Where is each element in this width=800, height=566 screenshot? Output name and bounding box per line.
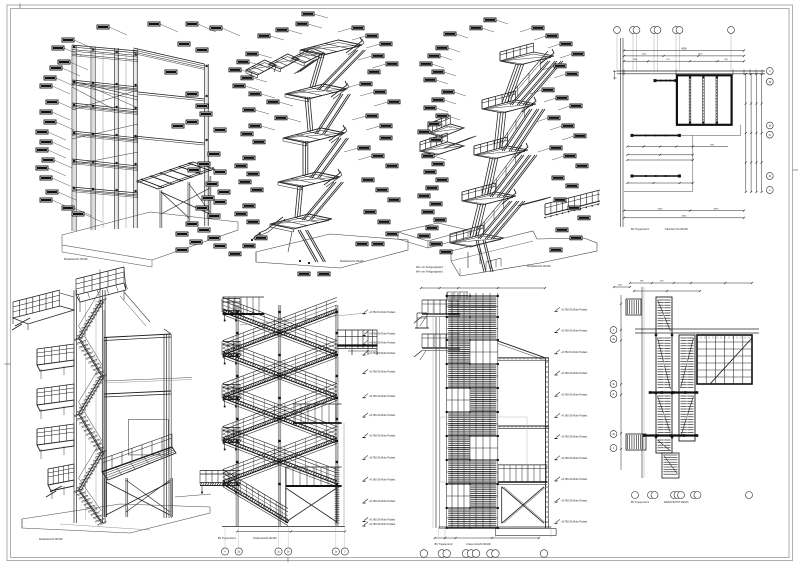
- svg-text:+9,760 Ok Rohr Podest: +9,760 Ok Rohr Podest: [561, 499, 588, 502]
- svg-text:+9,760 Ok Rohr Podest: +9,760 Ok Rohr Podest: [369, 435, 396, 438]
- svg-text:596: 596: [710, 144, 714, 146]
- svg-text:+9,760 Ok Rohr Podest: +9,760 Ok Rohr Podest: [561, 393, 588, 396]
- svg-text:+9,760 Ok Rohr Podest: +9,760 Ok Rohr Podest: [369, 414, 396, 417]
- svg-text:+9,760 Ok Rohr Podest: +9,760 Ok Rohr Podest: [369, 519, 396, 522]
- svg-text:+9,760 Ok Rohr Podest: +9,760 Ok Rohr Podest: [369, 395, 396, 398]
- svg-text:Modellansicht 09/100: Modellansicht 09/100: [39, 538, 63, 541]
- svg-text:Modellansicht 09/100: Modellansicht 09/100: [340, 260, 364, 263]
- svg-text:+9,760 Ok Rohr Podest: +9,760 Ok Rohr Podest: [561, 521, 588, 524]
- svg-text:5080: 5080: [658, 209, 664, 211]
- svg-text:+9,760 Ok Rohr Podest: +9,760 Ok Rohr Podest: [369, 478, 396, 481]
- svg-text:1360: 1360: [633, 59, 638, 61]
- svg-text:BV Treppenturm: BV Treppenturm: [631, 501, 649, 504]
- svg-text:2140: 2140: [642, 54, 647, 56]
- svg-text:1560: 1560: [618, 285, 622, 287]
- svg-text:BV Treppenturm: BV Treppenturm: [435, 543, 453, 546]
- svg-text:Modellansicht 09/100: Modellansicht 09/100: [527, 265, 551, 268]
- svg-text:+9,760 Ok Rohr Podest: +9,760 Ok Rohr Podest: [561, 372, 588, 375]
- svg-text:Modellansicht 09/100: Modellansicht 09/100: [64, 258, 88, 261]
- svg-text:Vorderansicht 09/100: Vorderansicht 09/100: [253, 537, 277, 540]
- svg-text:WA +xxx Fertigungsband: WA +xxx Fertigungsband: [416, 271, 443, 274]
- svg-text:576: 576: [666, 59, 670, 61]
- svg-text:+9,760 Ok Rohr Podest: +9,760 Ok Rohr Podest: [369, 457, 396, 460]
- svg-text:+9,760 Ok Rohr Podest: +9,760 Ok Rohr Podest: [561, 330, 588, 333]
- svg-text:+9,760 Ok Rohr Podest: +9,760 Ok Rohr Podest: [561, 351, 588, 354]
- svg-text:+9,760 Ok Rohr Podest: +9,760 Ok Rohr Podest: [561, 478, 588, 481]
- svg-text:WA +xxx Fertigungsband: WA +xxx Fertigungsband: [416, 266, 443, 269]
- svg-text:+9,760 Ok Rohr Podest: +9,760 Ok Rohr Podest: [369, 333, 396, 336]
- svg-text:DRAUFSICHT 09/100: DRAUFSICHT 09/100: [664, 501, 689, 504]
- svg-text:+9,760 Ok Rohr Podest: +9,760 Ok Rohr Podest: [369, 523, 396, 526]
- svg-text:598: 598: [660, 281, 664, 283]
- svg-text:284: 284: [724, 59, 728, 61]
- svg-text:+9,760 Ok Rohr Podest: +9,760 Ok Rohr Podest: [369, 352, 396, 355]
- svg-text:Trachsehl UA 09/100: Trachsehl UA 09/100: [665, 228, 689, 231]
- svg-text:1914: 1914: [698, 54, 703, 56]
- svg-text:+9,760 Ok Rohr Podest: +9,760 Ok Rohr Podest: [561, 415, 588, 418]
- svg-text:+9,760 Ok Rohr Podest: +9,760 Ok Rohr Podest: [561, 309, 588, 312]
- svg-text:+9,760 Ok Rohr Podest: +9,760 Ok Rohr Podest: [561, 436, 588, 439]
- svg-text:+9,760 Ok Rohr Podest: +9,760 Ok Rohr Podest: [369, 371, 396, 374]
- svg-text:3929: 3929: [714, 209, 720, 211]
- svg-text:4800: 4800: [682, 216, 688, 218]
- svg-text:+9,760 Ok Rohr Podest: +9,760 Ok Rohr Podest: [369, 311, 396, 314]
- svg-text:+9,760 Ok Rohr Podest: +9,760 Ok Rohr Podest: [369, 342, 396, 345]
- svg-text:BV Treppenturm: BV Treppenturm: [631, 228, 649, 231]
- svg-text:+9,760 Ok Rohr Podest: +9,760 Ok Rohr Podest: [561, 457, 588, 460]
- svg-text:Untere Ansicht 09/100: Untere Ansicht 09/100: [466, 543, 491, 546]
- svg-text:BV Treppenturm: BV Treppenturm: [218, 537, 236, 540]
- svg-text:598: 598: [640, 281, 644, 283]
- svg-text:+9,760 Ok Rohr Podest: +9,760 Ok Rohr Podest: [369, 500, 396, 503]
- svg-text:4800: 4800: [681, 47, 687, 50]
